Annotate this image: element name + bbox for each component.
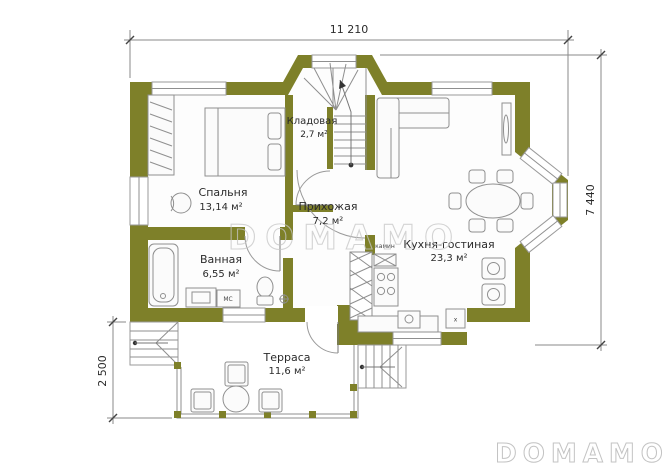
stove bbox=[374, 268, 398, 306]
watermark-center: DOMAMO bbox=[228, 218, 462, 258]
kitchen-bottom-window bbox=[393, 332, 441, 345]
kitchen-sink bbox=[398, 311, 420, 328]
pillow bbox=[268, 113, 281, 139]
bedroom-name: Спальня bbox=[199, 186, 248, 199]
terrace-door bbox=[305, 306, 338, 353]
dining-chair bbox=[497, 170, 513, 183]
kitchen-top-window bbox=[432, 82, 492, 95]
dining-chair bbox=[469, 219, 485, 232]
storage-name: Кладовая bbox=[287, 116, 338, 127]
dim-height-label: 7 440 bbox=[584, 184, 597, 216]
watermark-bottom-right: DOMAMO bbox=[495, 439, 669, 469]
fireplace-chimney bbox=[350, 252, 372, 320]
bedroom-top-window bbox=[152, 82, 226, 95]
floor-plan-page: МС bbox=[0, 0, 671, 470]
pillow bbox=[268, 144, 281, 170]
dining-chair bbox=[469, 170, 485, 183]
dining-table bbox=[466, 184, 520, 218]
bedroom-left-window bbox=[130, 177, 148, 225]
armchair bbox=[482, 258, 505, 279]
dining-chair bbox=[521, 193, 533, 209]
dining-chair bbox=[497, 219, 513, 232]
washing-machine-label: МС bbox=[223, 296, 232, 303]
stair-tower-window bbox=[312, 55, 356, 68]
hallway-name: Прихожая bbox=[299, 200, 358, 213]
toilet bbox=[257, 277, 273, 305]
dim-porch-label: 2 500 bbox=[96, 355, 109, 387]
bedroom-east-wall bbox=[285, 95, 293, 227]
bedroom-area: 13,14 м² bbox=[199, 202, 242, 213]
armchair bbox=[482, 284, 505, 305]
storage-area: 2,7 м² bbox=[300, 130, 328, 140]
terrace-name: Терраса bbox=[263, 351, 311, 364]
exterior-stair-right bbox=[358, 345, 406, 388]
boiler: х bbox=[446, 309, 465, 328]
terrace-area: 11,6 м² bbox=[269, 366, 306, 377]
dining-chair bbox=[449, 193, 461, 209]
bathroom-bottom-window bbox=[223, 308, 265, 322]
floor-plan-canvas: МС bbox=[0, 0, 671, 470]
bay-window-middle bbox=[553, 183, 567, 217]
terrace-round-table bbox=[223, 386, 249, 412]
boiler-label: х bbox=[454, 317, 458, 324]
dim-width-label: 11 210 bbox=[330, 23, 369, 36]
bathroom-area: 6,55 м² bbox=[203, 269, 240, 280]
exterior-stair-left bbox=[130, 322, 178, 365]
